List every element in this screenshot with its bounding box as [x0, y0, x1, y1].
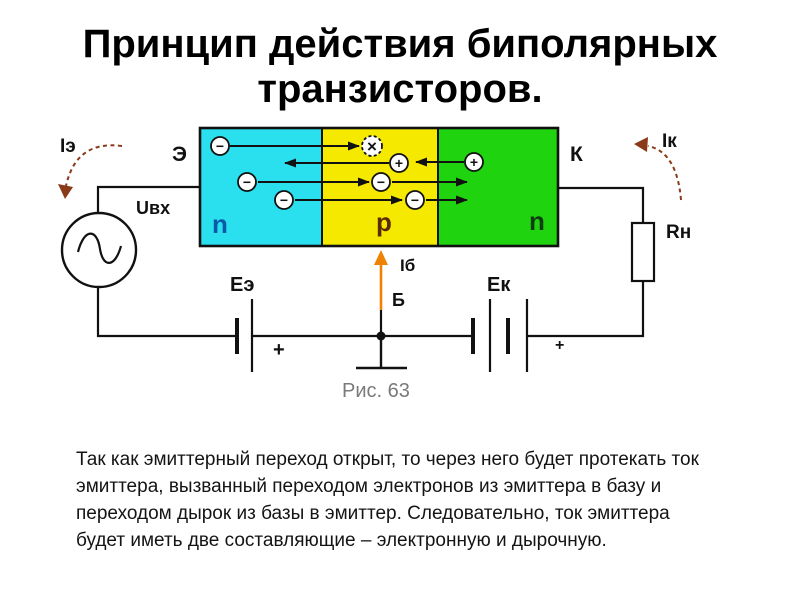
base-current-arrowhead	[374, 250, 388, 265]
ac-source-circle	[62, 213, 136, 287]
electron-symbol: −	[280, 192, 288, 208]
hole-symbol: +	[395, 155, 403, 171]
emitter-battery-label: Eэ	[230, 274, 254, 296]
collector-terminal-label: К	[570, 143, 583, 166]
resistor-body	[632, 223, 654, 281]
slide: Принцип действия биполярных транзисторов…	[0, 0, 800, 600]
emitter-battery: Eэ +	[230, 274, 285, 372]
collector-battery-plus: +	[555, 337, 564, 354]
emitter-current-label: Iэ	[60, 136, 76, 157]
load-resistor: Rн	[632, 222, 691, 281]
bottom-left-wire	[98, 287, 236, 336]
ac-source: Uвх	[62, 198, 170, 287]
input-voltage-label: Uвх	[136, 198, 170, 218]
bottom-right-wire	[528, 281, 643, 336]
base-current-arrow: Iб Б	[374, 250, 415, 336]
hole-particle: +	[465, 153, 483, 171]
ground-symbol	[356, 336, 407, 368]
collector-battery: Eк +	[473, 274, 564, 372]
electron-particle: −	[275, 191, 293, 209]
collector-current-arrowhead	[634, 137, 648, 152]
collector-current-arrow: Iк	[634, 131, 681, 200]
electron-symbol: −	[243, 174, 251, 190]
recombination-symbol: ×	[367, 137, 377, 156]
figure-caption: Рис. 63	[342, 380, 410, 402]
base-terminal-label: Б	[392, 290, 405, 310]
collector-current-label: Iк	[662, 131, 677, 152]
electron-symbol: −	[411, 192, 419, 208]
collector-battery-label: Eк	[487, 274, 511, 296]
base-region-label: p	[376, 207, 392, 237]
electron-particle: −	[238, 173, 256, 191]
emitter-current-arrowhead	[58, 184, 73, 199]
electron-symbol: −	[216, 138, 224, 154]
electron-symbol: −	[377, 174, 385, 190]
hole-particle: +	[390, 154, 408, 172]
emitter-region-label: n	[212, 209, 228, 239]
emitter-battery-plus: +	[273, 339, 285, 361]
electron-particle: −	[406, 191, 424, 209]
emitter-current-arrow: Iэ	[58, 136, 122, 199]
load-resistor-label: Rн	[666, 222, 691, 243]
hole-symbol: +	[470, 154, 478, 170]
collector-region-label: n	[529, 206, 545, 236]
body-paragraph: Так как эмиттерный переход открыт, то че…	[76, 446, 796, 554]
emitter-terminal-label: Э	[172, 143, 187, 166]
recombination-marker: ×	[362, 136, 382, 156]
electron-particle: −	[211, 137, 229, 155]
base-current-label: Iб	[400, 256, 415, 275]
collector-current-curve	[648, 146, 681, 200]
electron-particle: −	[372, 173, 390, 191]
collector-wire	[558, 188, 643, 223]
